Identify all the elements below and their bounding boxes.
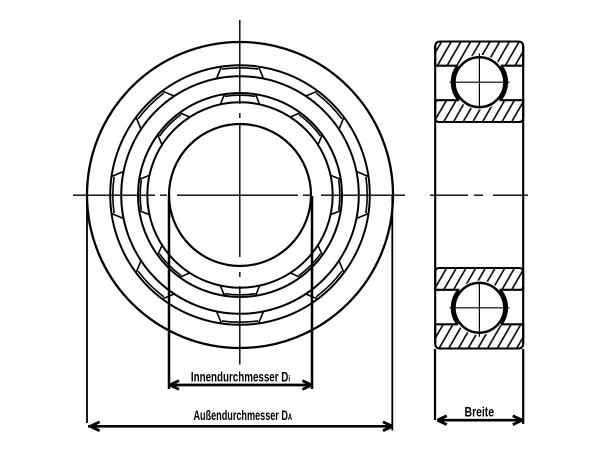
svg-text:Außendurchmesser DA: Außendurchmesser DA [193,407,292,424]
svg-text:Breite: Breite [465,404,495,420]
svg-text:Innendurchmesser Di: Innendurchmesser Di [191,369,290,385]
